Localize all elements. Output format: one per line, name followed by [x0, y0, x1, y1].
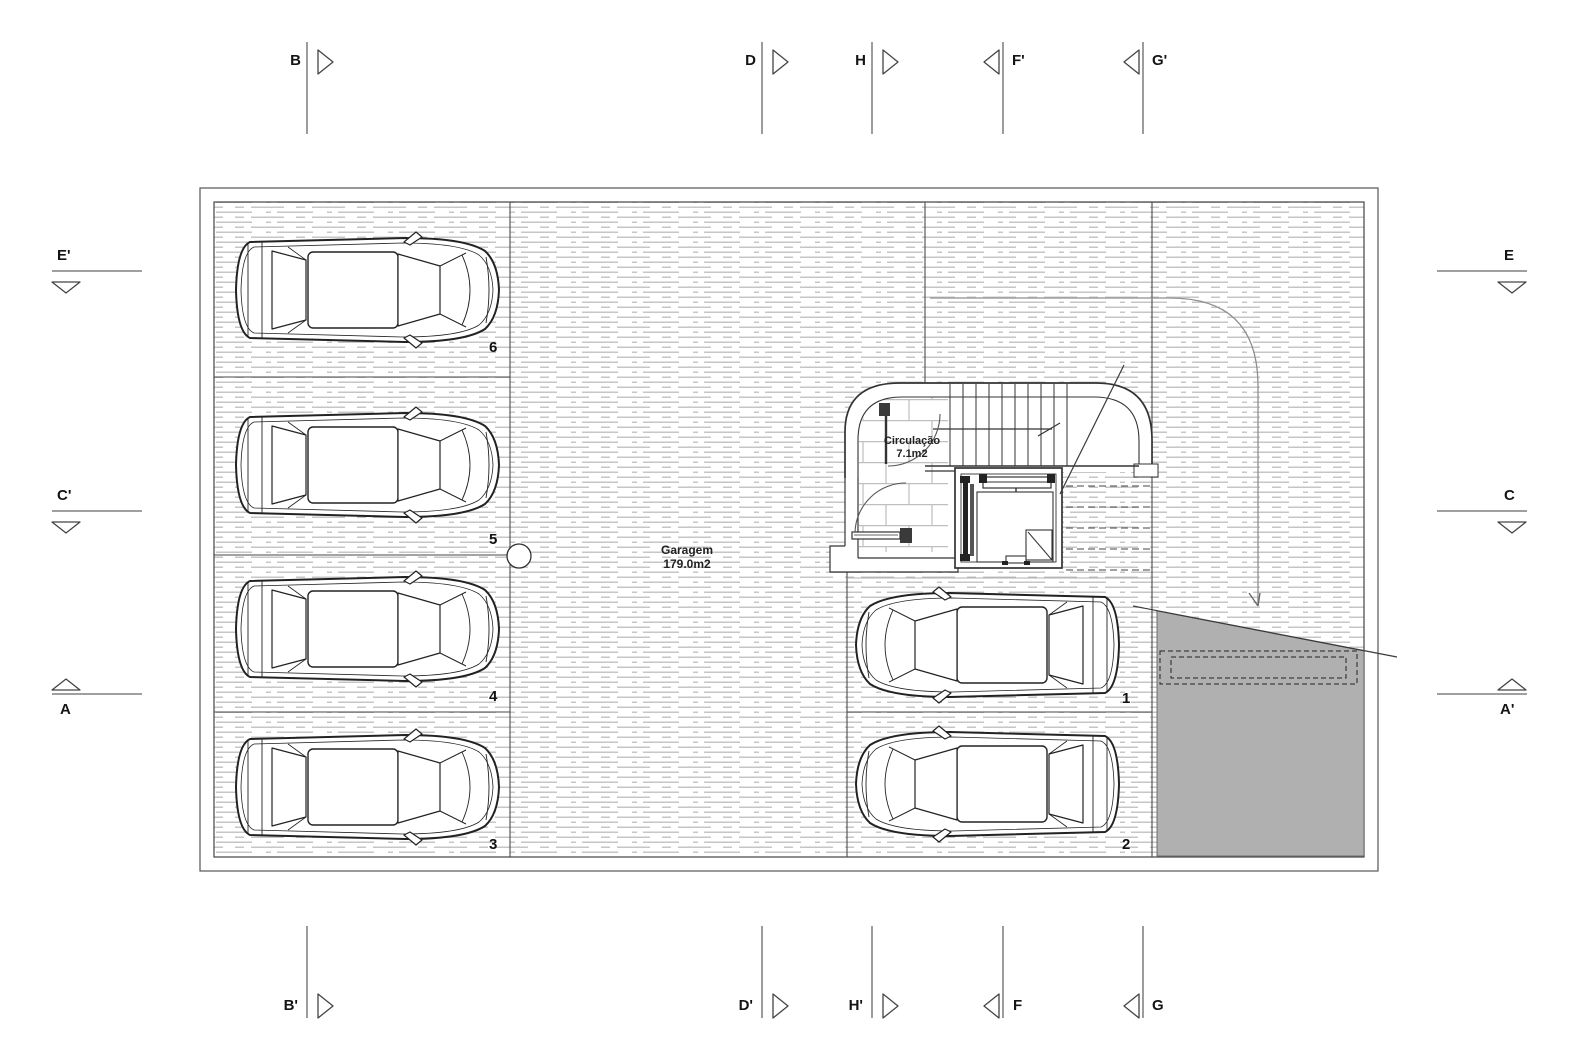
section-label-a-prime: A' [1500, 702, 1514, 717]
section-label-d-prime: D' [713, 998, 753, 1013]
stall-number-4: 4 [489, 689, 497, 704]
car-stall-6 [236, 232, 499, 348]
section-arrow-b [318, 50, 333, 74]
section-arrow-g [1124, 994, 1139, 1018]
section-label-a: A [60, 702, 71, 717]
circulacao-area: 7.1m2 [851, 448, 973, 461]
circulacao-name: Circulação [851, 435, 973, 448]
section-label-f: F [1013, 998, 1022, 1013]
section-arrow-g-prime [1124, 50, 1139, 74]
section-arrow-f-prime [984, 50, 999, 74]
section-arrow-c-prime [52, 522, 80, 533]
ramp-area [1157, 611, 1364, 856]
section-arrow-a-prime [1498, 679, 1526, 690]
car-stall-3 [236, 729, 499, 845]
circulacao-room-label: Circulação 7.1m2 [851, 435, 973, 461]
elevator [955, 468, 1062, 568]
car-stall-5 [236, 407, 499, 523]
section-label-c-prime: C' [57, 488, 71, 503]
section-label-g: G [1152, 998, 1164, 1013]
section-label-h: H [828, 53, 866, 68]
car-stall-4 [236, 571, 499, 687]
section-arrow-e [1498, 282, 1526, 293]
section-label-b-prime: B' [258, 998, 298, 1013]
section-arrow-e-prime [52, 282, 80, 293]
section-arrow-f [984, 994, 999, 1018]
garagem-area: 179.0m2 [627, 557, 747, 571]
section-arrow-a [52, 679, 80, 690]
section-label-h-prime: H' [823, 998, 863, 1013]
column-circle [507, 544, 531, 568]
stall-number-6: 6 [489, 340, 497, 355]
section-label-g-prime: G' [1152, 53, 1167, 68]
stall-number-5: 5 [489, 532, 497, 547]
section-label-e: E [1504, 248, 1514, 263]
section-arrow-d [773, 50, 788, 74]
floor-plan-drawing [0, 0, 1572, 1058]
stall-number-3: 3 [489, 837, 497, 852]
section-arrow-b-prime [318, 994, 333, 1018]
section-label-d: D [718, 53, 756, 68]
stall-number-2: 2 [1122, 837, 1130, 852]
section-arrow-h [883, 50, 898, 74]
section-label-b: B [263, 53, 301, 68]
section-arrow-h-prime [883, 994, 898, 1018]
garagem-room-label: Garagem 179.0m2 [627, 543, 747, 571]
section-label-c: C [1504, 488, 1515, 503]
garagem-name: Garagem [627, 543, 747, 557]
section-arrow-c [1498, 522, 1526, 533]
stall-number-1: 1 [1122, 691, 1130, 706]
car-stall-1 [856, 587, 1119, 703]
section-arrow-d-prime [773, 994, 788, 1018]
section-label-f-prime: F' [1012, 53, 1025, 68]
section-label-e-prime: E' [57, 248, 71, 263]
car-stall-2 [856, 726, 1119, 842]
floor-plan-page: B D H F' G' B' D' H' F G E' C' A E C A' … [0, 0, 1572, 1058]
